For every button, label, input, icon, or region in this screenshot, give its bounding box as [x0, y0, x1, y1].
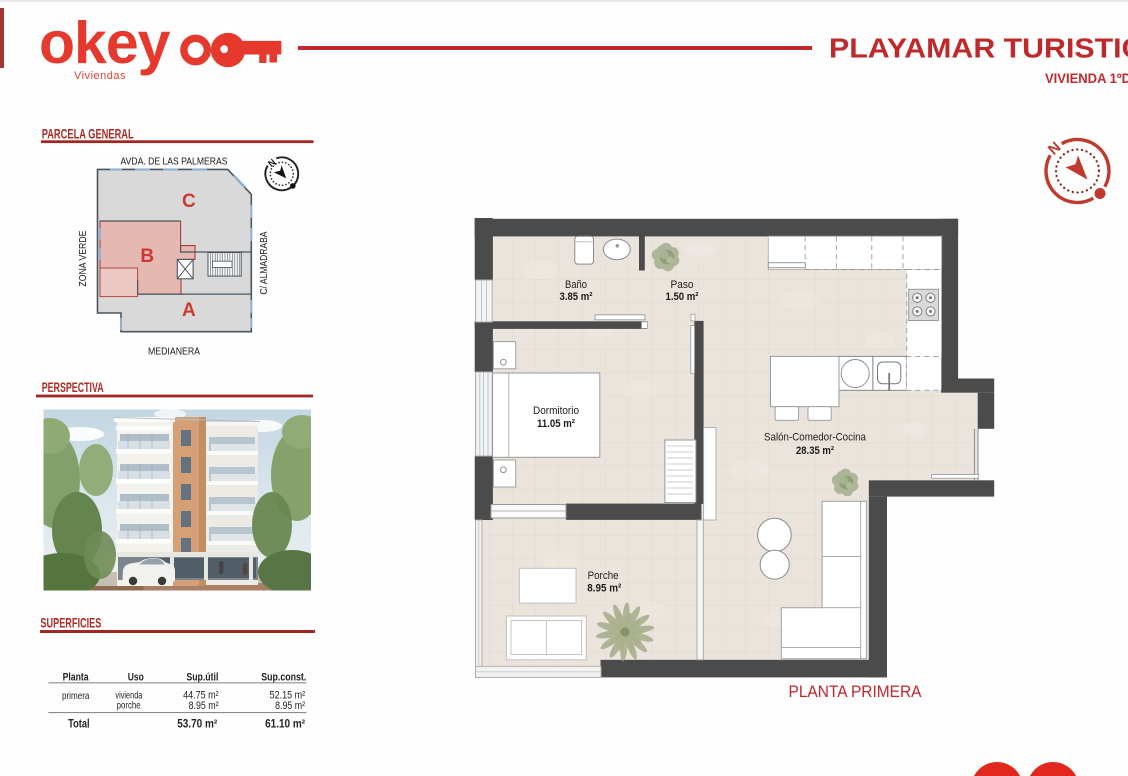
- svg-text:C/ ALMADRABA: C/ ALMADRABA: [258, 232, 270, 295]
- svg-text:C: C: [182, 191, 196, 212]
- svg-text:28.35 m²: 28.35 m²: [796, 445, 834, 457]
- svg-text:3.85 m²: 3.85 m²: [560, 291, 593, 303]
- svg-text:Paso: Paso: [671, 279, 694, 291]
- svg-text:Planta: Planta: [63, 672, 90, 684]
- svg-text:8.95 m²: 8.95 m²: [587, 583, 621, 595]
- svg-text:B: B: [140, 246, 154, 267]
- svg-text:porche: porche: [117, 701, 141, 712]
- svg-text:8.95 m²: 8.95 m²: [275, 700, 305, 712]
- svg-text:MEDIANERA: MEDIANERA: [148, 346, 200, 358]
- svg-text:PLANTA PRIMERA: PLANTA PRIMERA: [789, 682, 923, 701]
- svg-text:N: N: [1045, 139, 1064, 159]
- svg-text:Sup.const.: Sup.const.: [261, 672, 306, 684]
- svg-text:A: A: [182, 300, 196, 321]
- svg-text:PARCELA GENERAL: PARCELA GENERAL: [42, 126, 134, 142]
- svg-text:8.95 m²: 8.95 m²: [189, 700, 219, 712]
- svg-text:Sup.útil: Sup.útil: [186, 672, 218, 684]
- svg-text:primera: primera: [62, 690, 90, 702]
- svg-text:Salón-Comedor-Cocina: Salón-Comedor-Cocina: [764, 432, 867, 444]
- svg-text:ZONA VERDE: ZONA VERDE: [77, 231, 89, 287]
- svg-text:53.70 m²: 53.70 m²: [177, 719, 217, 731]
- svg-text:Baño: Baño: [565, 279, 587, 291]
- svg-text:PERSPECTIVA: PERSPECTIVA: [42, 379, 104, 395]
- svg-text:AVDA. DE LAS PALMERAS: AVDA. DE LAS PALMERAS: [121, 156, 228, 168]
- svg-text:VIVIENDA 1ºD: VIVIENDA 1ºD: [1045, 70, 1128, 86]
- svg-text:Porche: Porche: [588, 570, 619, 582]
- svg-text:1.50 m²: 1.50 m²: [666, 291, 699, 303]
- svg-text:61.10 m²: 61.10 m²: [265, 719, 305, 731]
- svg-text:PLAYAMAR TURISTICO: PLAYAMAR TURISTICO: [829, 33, 1128, 64]
- svg-text:Uso: Uso: [128, 672, 144, 684]
- svg-text:11.05 m²: 11.05 m²: [537, 418, 575, 430]
- svg-text:SUPERFICIES: SUPERFICIES: [40, 615, 101, 631]
- svg-text:Total: Total: [68, 719, 90, 731]
- svg-text:Dormitorio: Dormitorio: [533, 405, 579, 417]
